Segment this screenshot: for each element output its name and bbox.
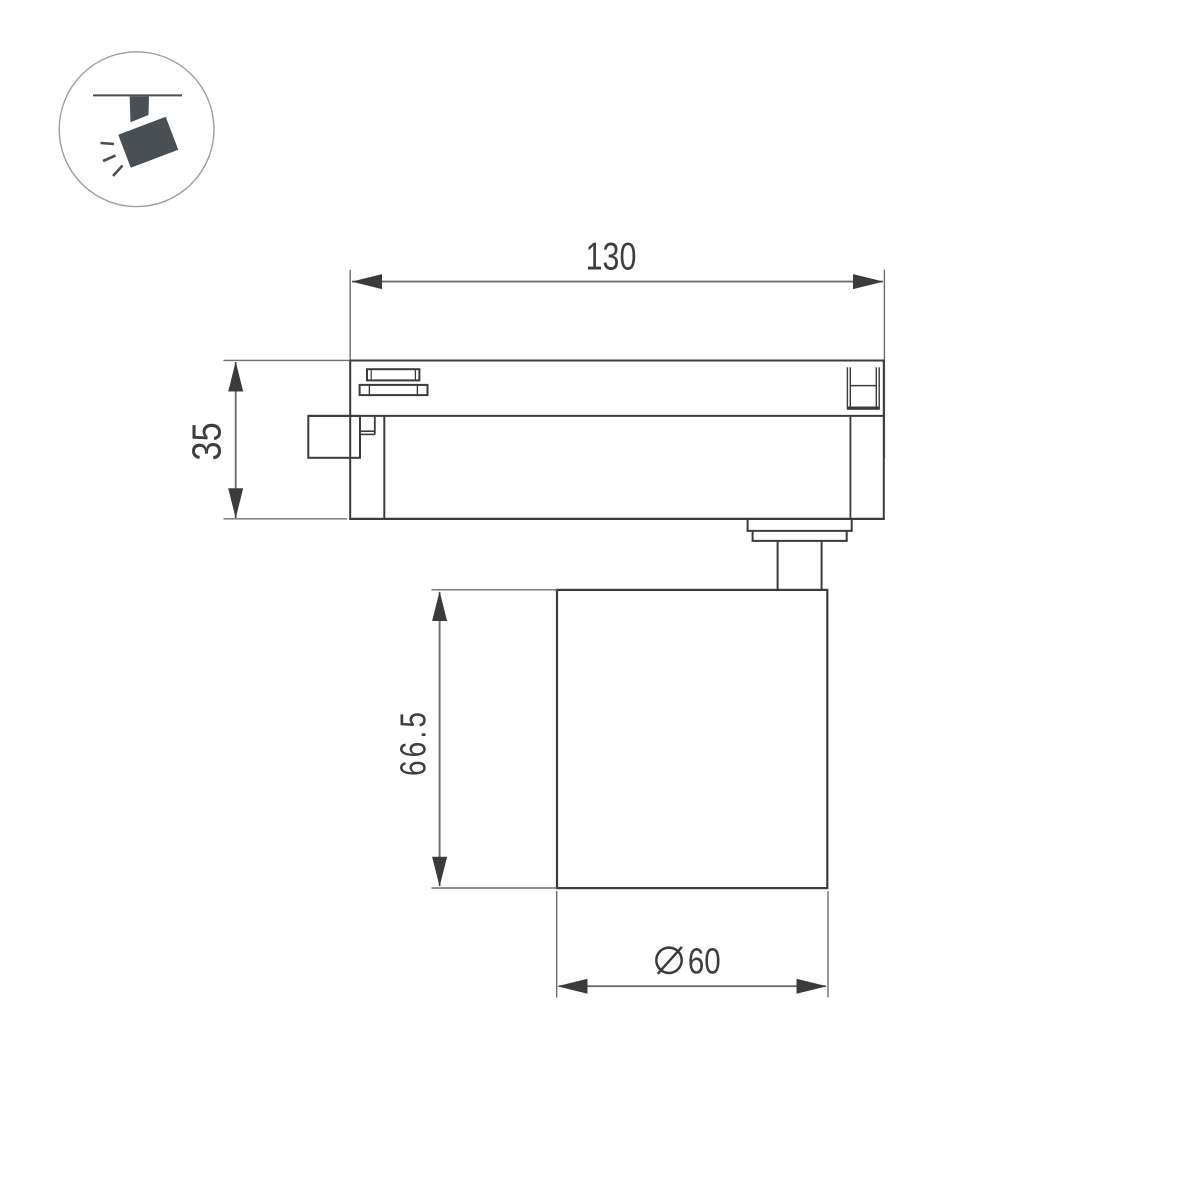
svg-text:66.5: 66.5 — [393, 709, 433, 776]
svg-text:35: 35 — [185, 422, 230, 460]
svg-text:130: 130 — [586, 235, 637, 278]
svg-text:60: 60 — [688, 941, 721, 981]
